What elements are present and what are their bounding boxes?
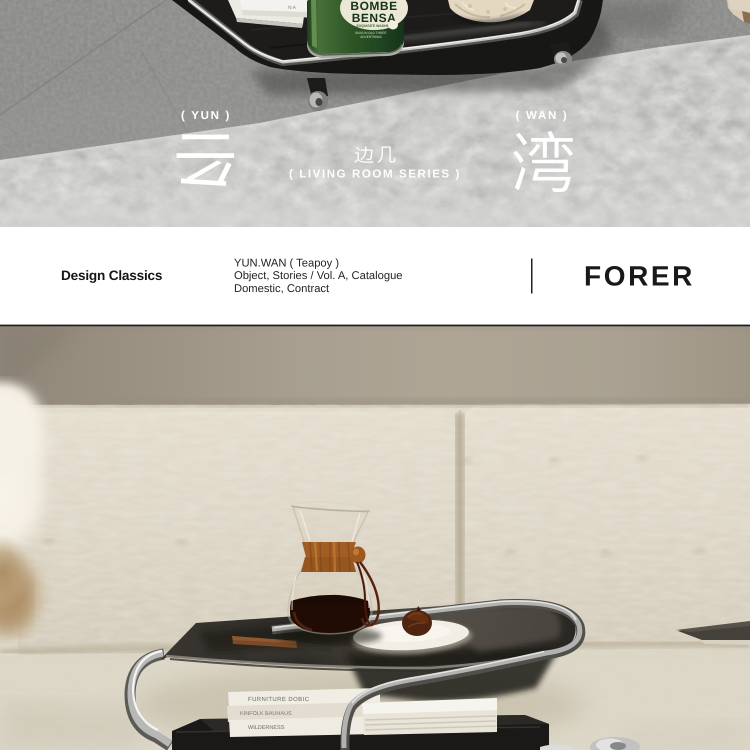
svg-text:Object, Stories / Vol. A, Cata: Object, Stories / Vol. A, Catalogue — [234, 270, 403, 282]
svg-text:NA: NA — [288, 5, 297, 11]
svg-text:( LIVING ROOM SERIES ): ( LIVING ROOM SERIES ) — [289, 169, 461, 181]
svg-text:YUN.WAN ( Teapoy ): YUN.WAN ( Teapoy ) — [234, 258, 339, 270]
svg-text:Design Classics: Design Classics — [61, 268, 162, 283]
svg-text:( YUN ): ( YUN ) — [181, 110, 231, 122]
svg-text:WILDERNESS: WILDERNESS — [248, 725, 285, 731]
svg-text:ADVERTISING: ADVERTISING — [360, 35, 382, 39]
svg-text:Domestic, Contract: Domestic, Contract — [234, 283, 330, 295]
svg-text:EXQUISITE WASHED: EXQUISITE WASHED — [356, 24, 391, 28]
svg-text:KINFOLK BAUHAUS: KINFOLK BAUHAUS — [240, 711, 292, 717]
svg-text:FORER: FORER — [584, 261, 695, 292]
svg-text:FURNITURE DOBIC: FURNITURE DOBIC — [248, 696, 310, 703]
svg-text:( WAN ): ( WAN ) — [516, 110, 569, 122]
